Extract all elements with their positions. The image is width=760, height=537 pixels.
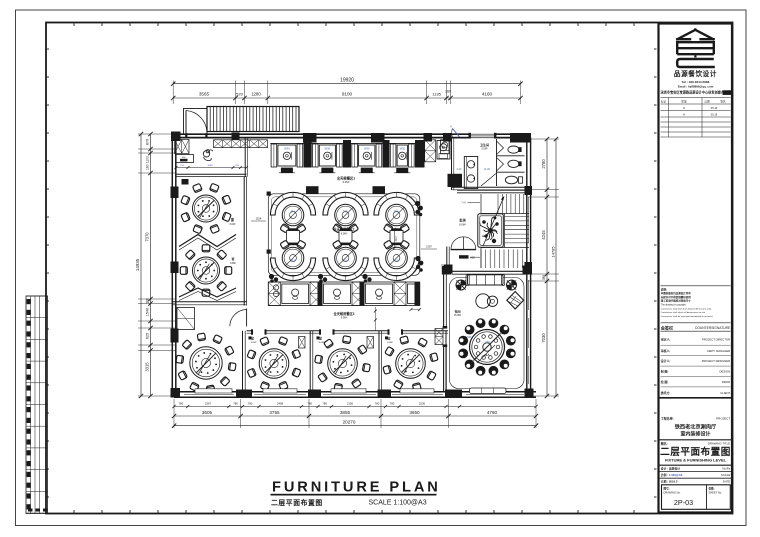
svg-text:全天候用餐区2: 全天候用餐区2 [333,227,355,232]
svg-text:3230: 3230 [419,401,426,405]
svg-text:2780: 2780 [541,159,546,169]
svg-text:3605: 3605 [202,410,213,415]
svg-text:W30: W30 [364,146,370,150]
svg-text:铁西老北京涮肉厅: 铁西老北京涮肉厅 [675,423,717,431]
svg-text:宴: 宴 [319,337,322,341]
svg-text:工程名称:: 工程名称: [661,416,674,421]
svg-text:10人: 10人 [484,353,490,357]
svg-text:全天候用餐区3: 全天候用餐区3 [333,311,355,316]
svg-text:本图纸版权归品源设计所有: 本图纸版权归品源设计所有 [660,291,692,295]
svg-text:780: 780 [307,401,312,405]
svg-text:9.0M²: 9.0M² [341,317,348,320]
svg-text:区域: 区域 [681,99,687,103]
svg-text:2458: 2458 [277,401,284,405]
svg-text:15.0M²: 15.0M² [454,314,462,317]
svg-text:二层平面布置图: 二层平面布置图 [271,498,323,507]
svg-text:2088: 2088 [208,165,214,167]
svg-text:图名:: 图名: [661,441,668,446]
svg-text:4160: 4160 [482,92,493,97]
svg-text:870: 870 [146,139,150,145]
svg-text:制 图:: 制 图: [661,368,669,373]
svg-text:图号:: 图号: [664,487,670,491]
svg-text:10人: 10人 [343,259,349,263]
svg-text:设计 : 品源设计: 设计 : 品源设计 [661,467,680,471]
svg-text:DEPT. MANAGER: DEPT. MANAGER [707,349,730,353]
svg-text:2P-03: 2P-03 [674,498,693,507]
svg-text:PROJECT DESIGNER: PROJECT DESIGNER [702,359,730,363]
svg-text:1517: 1517 [395,236,398,242]
svg-text:设计人:: 设计人: [661,358,671,363]
svg-text:7+8: 7+8 [461,201,466,205]
svg-text:520: 520 [236,92,243,97]
svg-text:1367: 1367 [426,245,432,249]
svg-text:施工前请仔细核对现场尺寸: 施工前请仔细核对现场尺寸 [661,298,692,302]
svg-text:9100: 9100 [342,92,353,97]
svg-text:DESIGN: DESIGN [719,369,730,373]
svg-text:385: 385 [542,275,546,281]
svg-text:4245: 4245 [541,230,546,240]
svg-text:19920: 19920 [340,78,354,84]
svg-text:二层平面布置图: 二层平面布置图 [660,446,731,458]
svg-text:8.0M²: 8.0M² [230,223,236,226]
svg-text:日期: 日期 [704,99,710,103]
svg-text:宴: 宴 [388,337,391,341]
svg-text:全天候餐区1: 全天候餐区1 [336,176,355,181]
svg-text:14935: 14935 [135,258,140,271]
svg-text:日期 : 2019.5: 日期 : 2019.5 [661,480,678,484]
svg-text:说明:: 说明: [661,287,667,291]
svg-text:SCALE 1:100@A3: SCALE 1:100@A3 [369,499,427,506]
svg-text:FIXTURE & FURNISHING LEVEL: FIXTURE & FURNISHING LEVEL [665,457,727,462]
svg-text:Contractors shall work from fi: Contractors shall work from figured dime… [661,307,712,310]
svg-text:未经许可不得复制翻印使用: 未经许可不得复制翻印使用 [660,295,692,299]
svg-text:8.0M²: 8.0M² [230,262,236,265]
svg-text:780: 780 [178,401,183,405]
svg-text:The drawing is copyright: The drawing is copyright [661,304,686,307]
svg-text:14785: 14785 [550,246,555,258]
svg-text:10人: 10人 [343,209,349,213]
svg-text:1135: 1135 [432,92,441,97]
svg-text:室内装修设计: 室内装修设计 [680,430,710,437]
svg-text:11.00: 11.00 [484,169,490,171]
svg-text:COUNTERSIGNATURE: COUNTERSIGNATURE [695,326,731,330]
svg-text:PROJECT DIRECTOR: PROJECT DIRECTOR [702,338,730,342]
svg-text:780: 780 [248,401,253,405]
svg-text:Email : hy88899@qq. com: Email : hy88899@qq. com [678,85,714,89]
svg-text:3855: 3855 [340,410,351,415]
svg-text:3315: 3315 [145,362,150,372]
svg-text:宴: 宴 [231,256,234,261]
svg-text:SHEET No.: SHEET No. [709,490,723,494]
svg-text:审核人:: 审核人: [661,348,671,353]
svg-text:PROJECT: PROJECT [716,417,730,421]
svg-text:780: 780 [233,401,238,405]
svg-text:3755: 3755 [269,410,280,415]
svg-text:入: 入 [450,124,453,128]
svg-text:FURNITURE PLAN: FURNITURE PLAN [272,480,441,496]
svg-text:W30: W30 [284,146,290,150]
svg-text:1524: 1524 [256,217,262,221]
svg-text:Tel : 189 2844 6888: Tel : 189 2844 6888 [682,80,710,84]
svg-text:张数:: 张数: [709,487,715,491]
svg-text:1:100@A3: 1:100@A3 [669,473,683,477]
svg-text:A: A [683,106,685,110]
svg-text:10人: 10人 [394,259,400,263]
svg-text:签名: 签名 [720,99,726,103]
svg-text:Contractors shall check all di: Contractors shall check all dimensions o… [661,311,706,314]
svg-text:1.5M: 1.5M [484,341,489,344]
svg-text:9.0M²: 9.0M² [341,232,348,235]
svg-text:玄关: 玄关 [459,218,466,223]
svg-text:A: A [683,113,685,117]
svg-text:780: 780 [322,401,327,405]
svg-text:DRAWING No.: DRAWING No. [664,490,681,494]
svg-text:5.0M²: 5.0M² [481,148,487,151]
svg-text:DATE: DATE [723,480,730,484]
svg-text:8.0M²: 8.0M² [459,223,466,227]
svg-text:9.0M²: 9.0M² [387,341,393,344]
svg-text:160 1100: 160 1100 [146,156,150,170]
svg-text:3565: 3565 [199,92,210,97]
svg-text:7370: 7370 [145,232,150,242]
svg-text:10人: 10人 [290,209,296,213]
svg-text:会签栏: 会签栏 [661,324,673,330]
svg-text:10人: 10人 [394,209,400,213]
svg-text:6.0M²: 6.0M² [343,180,350,184]
svg-text:W30: W30 [400,146,406,150]
svg-text:160: 160 [445,89,451,93]
svg-text:780: 780 [375,401,380,405]
svg-text:05.19: 05.19 [711,113,718,117]
svg-text:2367: 2367 [205,401,212,405]
svg-text:绘 图:: 绘 图: [660,379,669,384]
svg-text:Contractors shall be reported: Contractors shall be reported immediatel… [661,315,713,318]
svg-text:1540: 1540 [146,308,150,316]
svg-text:780: 780 [390,401,395,405]
svg-text:比例 :: 比例 : [661,473,668,477]
svg-text:宴: 宴 [251,337,254,341]
svg-text:DRAWING TITLE: DRAWING TITLE [708,442,731,446]
svg-text:160: 160 [146,298,150,304]
svg-text:2150: 2150 [347,401,354,405]
svg-text:05.16: 05.16 [711,106,718,110]
svg-text:包间: 包间 [454,308,460,313]
svg-text:CLIENT: CLIENT [720,391,730,395]
svg-text:625: 625 [146,333,150,339]
svg-text:0.40: 0.40 [457,169,462,171]
svg-text:4760: 4760 [487,410,498,415]
svg-text:20270: 20270 [343,419,356,424]
svg-text:1280: 1280 [251,92,261,97]
svg-text:10人: 10人 [290,259,296,263]
svg-text:卫生间: 卫生间 [480,142,489,147]
svg-text:DRAW: DRAW [722,380,731,384]
svg-text:9.0M²: 9.0M² [251,341,257,344]
svg-text:委托方:: 委托方: [660,390,671,395]
svg-text:深圳市宝安区宝源路品源设计中心研发创意产业园: 深圳市宝安区宝源路品源设计中心研发创意产业园 [660,90,730,95]
svg-text:标记: 标记 [661,99,667,103]
svg-text:7030: 7030 [541,333,546,343]
svg-text:审定人:: 审定人: [661,337,671,342]
svg-text:W30: W30 [325,146,331,150]
svg-text:SCALE: SCALE [721,473,730,477]
svg-text:No/Pa: No/Pa [722,467,730,471]
svg-text:品源餐饮设计: 品源餐饮设计 [674,69,717,78]
svg-text:3650: 3650 [409,410,420,415]
